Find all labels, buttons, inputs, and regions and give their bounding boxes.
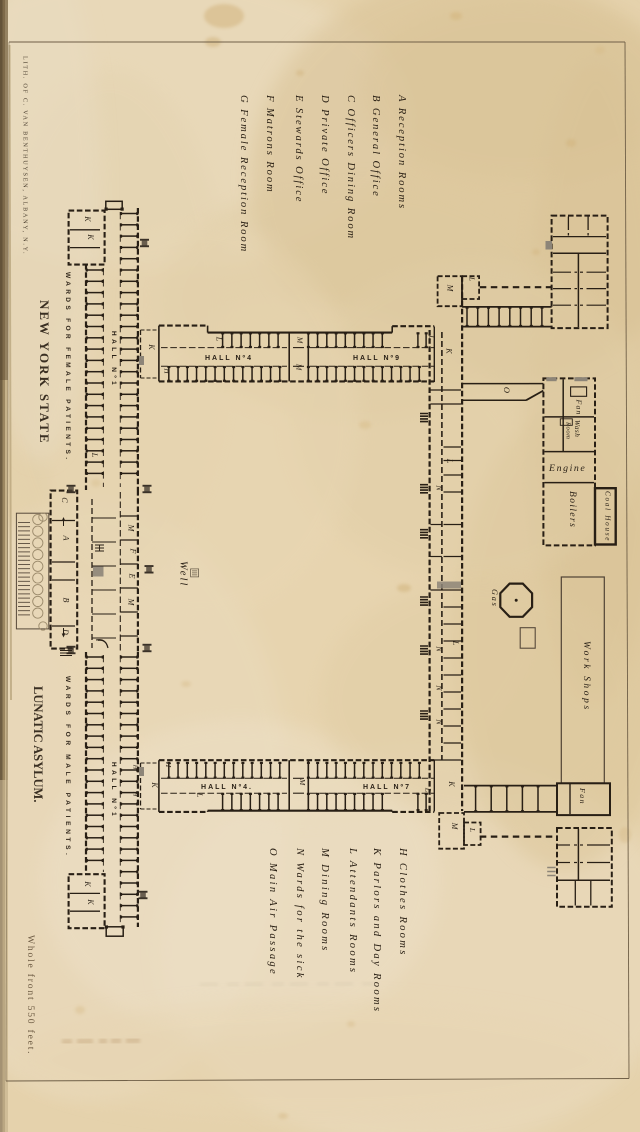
svg-text:Wash: Wash xyxy=(573,420,581,437)
svg-text:H: H xyxy=(164,761,173,768)
svg-text:E Stewards Office: E Stewards Office xyxy=(293,94,304,203)
svg-text:Fan: Fan xyxy=(578,787,587,805)
svg-text:O Main Air Passage: O Main Air Passage xyxy=(267,848,278,976)
svg-text:K: K xyxy=(86,898,95,905)
svg-text:HALL Nº4.: HALL Nº4. xyxy=(201,784,253,791)
svg-text:HALL Nº9: HALL Nº9 xyxy=(353,355,401,362)
svg-text:Room: Room xyxy=(565,421,572,439)
svg-text:M: M xyxy=(450,822,459,831)
svg-text:M: M xyxy=(298,778,307,786)
svg-text:N: N xyxy=(435,718,444,725)
svg-text:N Wards for the sick: N Wards for the sick xyxy=(294,847,305,980)
svg-text:M: M xyxy=(127,598,136,607)
svg-text:Work Shops: Work Shops xyxy=(581,641,591,712)
svg-text:K: K xyxy=(150,781,159,788)
svg-text:N: N xyxy=(435,684,444,691)
svg-text:K: K xyxy=(447,780,456,787)
svg-text:M: M xyxy=(296,336,305,344)
svg-text:L Attendants Rooms: L Attendants Rooms xyxy=(347,847,358,974)
svg-text:K Parlors and Day Rooms: K Parlors and Day Rooms xyxy=(371,847,382,1013)
svg-text:K: K xyxy=(86,233,95,240)
svg-text:H: H xyxy=(132,791,139,797)
svg-text:Engine: Engine xyxy=(548,463,586,474)
svg-text:Coal House: Coal House xyxy=(604,491,612,542)
svg-text:D Private Office: D Private Office xyxy=(319,94,330,195)
svg-text:M: M xyxy=(127,524,136,533)
svg-text:L: L xyxy=(451,640,460,646)
svg-text:A Reception Rooms: A Reception Rooms xyxy=(396,94,407,210)
svg-text:L: L xyxy=(468,276,477,281)
svg-text:N: N xyxy=(435,645,444,652)
svg-text:M: M xyxy=(295,363,304,371)
svg-text:O: O xyxy=(502,387,512,393)
svg-text:Well: Well xyxy=(178,561,189,587)
svg-text:E: E xyxy=(128,573,137,579)
svg-text:M Dining Rooms: M Dining Rooms xyxy=(319,847,330,953)
svg-text:WARDS FOR FEMALE PATIENTS.: WARDS FOR FEMALE PATIENTS. xyxy=(64,272,71,462)
svg-text:C: C xyxy=(60,497,69,503)
svg-text:K: K xyxy=(445,347,454,354)
svg-text:HALL Nº1: HALL Nº1 xyxy=(110,762,117,819)
svg-text:Fan: Fan xyxy=(575,399,584,416)
svg-text:F: F xyxy=(129,548,138,555)
svg-text:H Clothes Rooms: H Clothes Rooms xyxy=(397,847,408,957)
svg-text:Boilers: Boilers xyxy=(567,491,577,528)
svg-text:C Officers Dining Room: C Officers Dining Room xyxy=(345,95,356,240)
svg-text:G Female Reception Room: G Female Reception Room xyxy=(238,95,249,253)
svg-text:Gas: Gas xyxy=(490,589,499,608)
svg-text:L: L xyxy=(424,787,433,793)
svg-text:HALL Nº1: HALL Nº1 xyxy=(110,331,117,388)
svg-text:N: N xyxy=(435,484,444,491)
svg-text:A: A xyxy=(62,535,71,541)
svg-text:L: L xyxy=(445,458,454,464)
svg-text:HALL Nº4: HALL Nº4 xyxy=(205,355,253,362)
svg-text:B: B xyxy=(62,598,71,603)
svg-text:L: L xyxy=(90,452,99,458)
svg-text:K: K xyxy=(83,880,92,887)
svg-text:K: K xyxy=(83,215,92,222)
svg-text:M: M xyxy=(446,284,455,293)
svg-text:L: L xyxy=(468,827,477,832)
svg-text:L: L xyxy=(215,336,224,342)
svg-text:HALL Nº7: HALL Nº7 xyxy=(363,784,411,791)
svg-text:L: L xyxy=(195,792,204,798)
svg-text:LITH. OF C. VAN BENTHUYSEN, AL: LITH. OF C. VAN BENTHUYSEN, ALBANY, N.Y. xyxy=(22,56,29,255)
svg-text:Whole front 550 feet.: Whole front 550 feet. xyxy=(25,935,36,1055)
svg-text:D: D xyxy=(62,628,71,635)
svg-text:H: H xyxy=(163,367,172,374)
svg-text:K: K xyxy=(147,343,156,350)
svg-text:B General Office: B General Office xyxy=(370,95,381,198)
svg-text:LUNATIC ASYLUM.: LUNATIC ASYLUM. xyxy=(31,686,45,802)
svg-text:F Matrons Room: F Matrons Room xyxy=(264,94,275,194)
svg-text:H: H xyxy=(132,764,139,770)
svg-text:WARDS FOR MALE PATIENTS.: WARDS FOR MALE PATIENTS. xyxy=(64,676,71,859)
svg-text:NEW YORK STATE: NEW YORK STATE xyxy=(37,300,52,445)
